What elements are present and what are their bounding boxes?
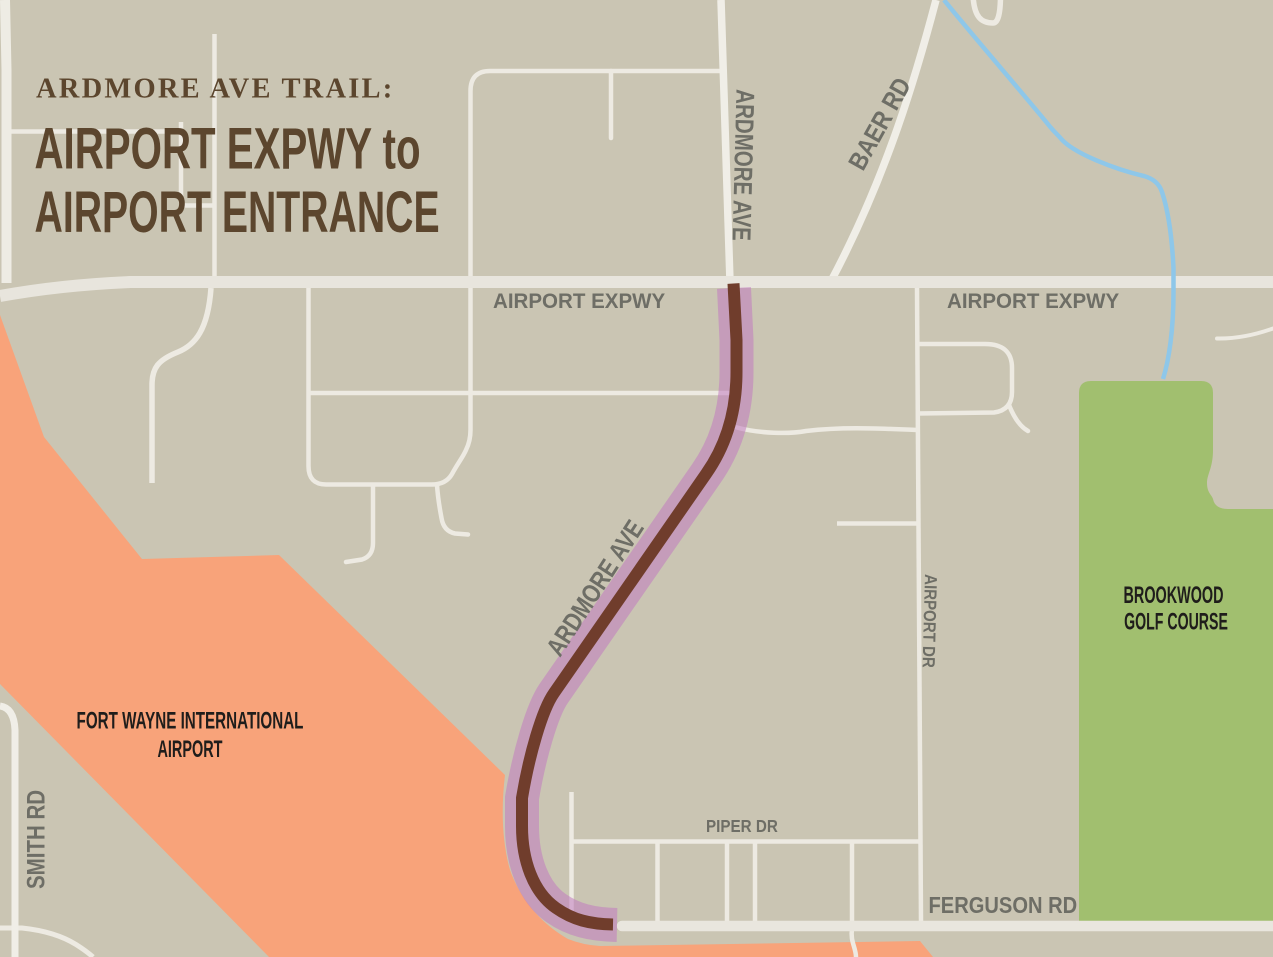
svg-text:AIRPORT EXPWY: AIRPORT EXPWY <box>947 290 1119 314</box>
svg-text:SMITH RD: SMITH RD <box>22 790 50 889</box>
svg-text:AIRPORT EXPWY to: AIRPORT EXPWY to <box>35 116 421 181</box>
svg-text:ARDMORE AVE TRAIL:: ARDMORE AVE TRAIL: <box>36 74 394 105</box>
svg-text:AIRPORT DR: AIRPORT DR <box>918 574 940 668</box>
svg-text:PIPER DR: PIPER DR <box>706 817 778 836</box>
svg-text:BROOKWOOD: BROOKWOOD <box>1124 582 1224 609</box>
svg-text:GOLF COURSE: GOLF COURSE <box>1124 609 1228 636</box>
svg-text:FERGUSON RD: FERGUSON RD <box>929 892 1078 919</box>
svg-text:FORT WAYNE INTERNATIONAL: FORT WAYNE INTERNATIONAL <box>77 708 304 734</box>
svg-text:AIRPORT ENTRANCE: AIRPORT ENTRANCE <box>35 180 440 244</box>
svg-text:AIRPORT EXPWY: AIRPORT EXPWY <box>493 290 665 314</box>
svg-text:ARDMORE AVE: ARDMORE AVE <box>727 89 760 241</box>
svg-text:AIRPORT: AIRPORT <box>157 736 223 763</box>
